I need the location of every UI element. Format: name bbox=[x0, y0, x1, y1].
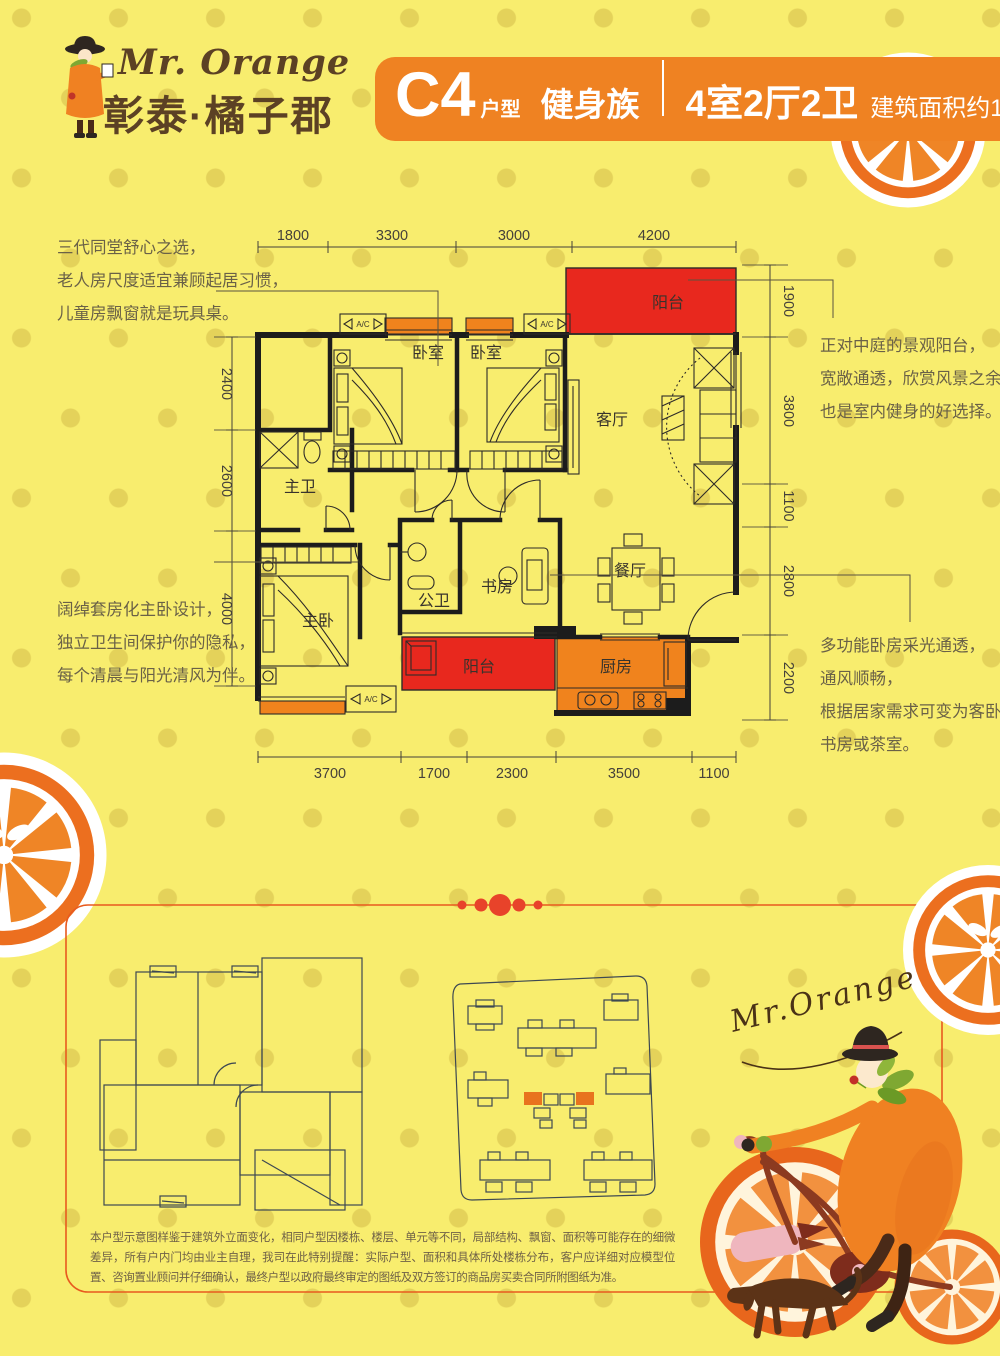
annotation-line: 多功能卧房采光通透， bbox=[820, 630, 1000, 663]
dim-right-2: 3800 bbox=[780, 395, 796, 427]
dim-right-3: 1100 bbox=[780, 490, 796, 521]
room-label-balcony-bottom: 阳台 bbox=[463, 658, 495, 676]
room-label-dining: 餐厅 bbox=[614, 562, 646, 580]
site-plan bbox=[453, 976, 655, 1200]
annotation-line: 正对中庭的景观阳台， bbox=[820, 330, 1000, 363]
annotation-bottom-right: 多功能卧房采光通透， 通风顺畅， 根据居家需求可变为客卧、 书房或茶室。 bbox=[820, 630, 1000, 762]
room-label-bedroom2: 卧室 bbox=[470, 344, 502, 362]
banner-divider bbox=[662, 60, 664, 116]
mascot-bicycle-illustration bbox=[700, 1026, 1000, 1345]
brand-name-en: Mr. Orange bbox=[118, 42, 350, 83]
dim-bottom-1: 3700 bbox=[314, 766, 346, 782]
dim-right-5: 2200 bbox=[780, 662, 796, 694]
annotation-line: 独立卫生间保护你的隐私， bbox=[57, 627, 255, 660]
annotation-line: 每个清晨与阳光清风为伴。 bbox=[57, 660, 255, 693]
unit-code: C4 bbox=[395, 60, 476, 130]
brand-name-cn: 彰泰·橘子郡 bbox=[103, 82, 334, 142]
dim-right-1: 1900 bbox=[780, 285, 796, 317]
room-label-master-bed: 主卧 bbox=[302, 612, 334, 630]
dim-top-2: 3300 bbox=[376, 228, 408, 244]
dim-bottom-2: 1700 bbox=[418, 766, 450, 782]
annotation-line: 书房或茶室。 bbox=[820, 729, 1000, 762]
annotation-line: 通风顺畅， bbox=[820, 663, 1000, 696]
door-arcs bbox=[326, 470, 736, 640]
room-label-bedroom1: 卧室 bbox=[412, 344, 444, 362]
room-label-living: 客厅 bbox=[596, 411, 628, 429]
svg-text:A/C: A/C bbox=[540, 320, 554, 329]
room-label-kitchen: 厨房 bbox=[600, 658, 632, 676]
dim-left-1: 2400 bbox=[218, 368, 234, 400]
annotation-line: 也是室内健身的好选择。 bbox=[820, 396, 1000, 429]
highlighted-building bbox=[576, 1092, 594, 1105]
bed-furniture bbox=[334, 350, 402, 462]
svg-text:A/C: A/C bbox=[356, 320, 370, 329]
dim-bottom-4: 3500 bbox=[608, 766, 640, 782]
annotation-line: 根据居家需求可变为客卧、 bbox=[820, 696, 1000, 729]
living-room-furniture bbox=[568, 348, 736, 504]
floor-plan: A/C A/C A/C bbox=[258, 268, 741, 714]
public-bath-fixtures bbox=[400, 543, 434, 589]
room-label-study: 书房 bbox=[481, 578, 513, 596]
unit-area: 建筑面积约122 m2 bbox=[870, 95, 1000, 122]
annotation-top-left: 三代同堂舒心之选， 老人房尺度适宜兼顾起居习惯， 儿童房飘窗就是玩具桌。 bbox=[57, 232, 288, 331]
annotation-line: 儿童房飘窗就是玩具桌。 bbox=[57, 298, 288, 331]
poster-page: A/C A/C A/C bbox=[0, 0, 1000, 1356]
svg-text:A/C: A/C bbox=[364, 695, 378, 704]
unit-banner: C4户型健身族4室2厅2卫建筑面积约122 m2 bbox=[375, 57, 1000, 141]
unit-code-label: 户型 bbox=[481, 99, 521, 121]
bed-furniture bbox=[487, 350, 562, 462]
annotation-line: 老人房尺度适宜兼顾起居习惯， bbox=[57, 265, 288, 298]
dim-top-4: 4200 bbox=[638, 228, 670, 244]
master-bath-fixtures bbox=[260, 432, 321, 468]
orange-slice-panel-corner-icon bbox=[903, 865, 1000, 1035]
annotation-top-right: 正对中庭的景观阳台， 宽敞通透，欣赏风景之余 也是室内健身的好选择。 bbox=[820, 330, 1000, 429]
annotation-line: 三代同堂舒心之选， bbox=[57, 232, 288, 265]
ac-unit: A/C bbox=[340, 314, 386, 334]
ac-unit: A/C bbox=[346, 686, 396, 712]
unit-spec: 4室2厅2卫 bbox=[686, 83, 859, 124]
room-label-public-bath: 公卫 bbox=[418, 593, 450, 610]
wardrobe bbox=[470, 451, 562, 469]
dim-bottom-3: 2300 bbox=[496, 766, 528, 782]
highlighted-building bbox=[524, 1092, 542, 1105]
dim-left-2: 2600 bbox=[218, 465, 234, 497]
disclaimer-text: 本户型示意图样鉴于建筑外立面变化，相同户型因楼栋、楼层、单元等不同，局部结构、飘… bbox=[90, 1228, 675, 1288]
room-label-master-bath: 主卫 bbox=[284, 478, 316, 496]
mini-floorplan bbox=[100, 958, 362, 1210]
orange-slice-left-edge-icon bbox=[0, 753, 107, 958]
annotation-line: 阔绰套房化主卧设计， bbox=[57, 594, 255, 627]
dim-right-4: 2800 bbox=[780, 565, 796, 597]
annotation-line: 宽敞通透，欣赏风景之余 bbox=[820, 363, 1000, 396]
room-label-balcony-top: 阳台 bbox=[652, 294, 684, 312]
ac-unit: A/C bbox=[524, 314, 570, 334]
dim-bottom-5: 1100 bbox=[698, 766, 729, 782]
unit-tagline: 健身族 bbox=[541, 86, 640, 123]
dim-top-3: 3000 bbox=[498, 228, 530, 244]
annotation-bottom-left: 阔绰套房化主卧设计， 独立卫生间保护你的隐私， 每个清晨与阳光清风为伴。 bbox=[57, 594, 255, 693]
